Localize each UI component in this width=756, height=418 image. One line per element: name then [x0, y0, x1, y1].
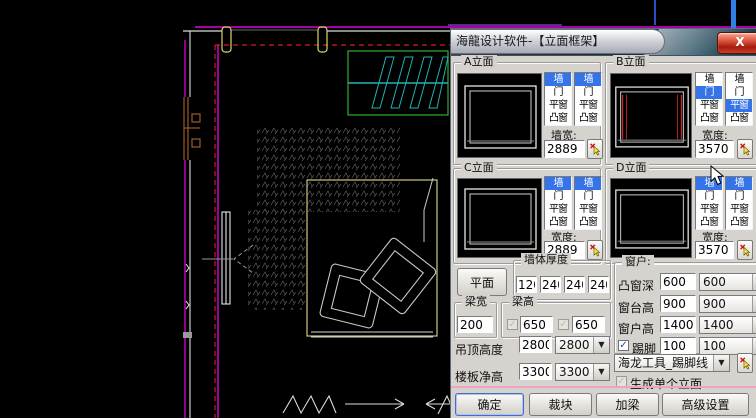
edge-type-list-left[interactable]: 墙门平窗凸窗 — [544, 176, 572, 230]
pick-cursor-icon — [738, 142, 750, 156]
skirting-tool-combo[interactable]: 海龙工具_踢脚线 ▼ — [614, 354, 730, 372]
wall-thickness-input-1[interactable] — [516, 276, 537, 293]
edge-type-list-right[interactable]: 墙门平窗凸窗 — [725, 72, 753, 126]
elevation-group-d: D立面 墙门平窗凸窗 墙门平窗凸窗 宽度: — [605, 168, 756, 264]
edge-type-list-left[interactable]: 墙门平窗凸窗 — [544, 72, 572, 126]
skirting-checkbox[interactable]: ✓ — [618, 340, 629, 351]
list-item[interactable]: 平窗 — [696, 203, 722, 216]
bay-depth-label: 凸窗深 — [618, 277, 654, 294]
ceiling-height-label: 吊顶高度 — [455, 341, 503, 358]
single-elevation-label: 生成单个立面 — [630, 375, 702, 392]
floor-height-label: 楼板净高 — [455, 368, 503, 385]
elevation-group-c: C立面 墙门平窗凸窗 墙门平窗凸窗 宽度: — [453, 168, 601, 264]
list-item[interactable]: 凸窗 — [696, 216, 722, 229]
dialog-titlebar[interactable]: 海龍设计软件-【立面框架】 X — [451, 29, 756, 55]
beam-height-group: 梁高 ✓ ✓ — [501, 302, 611, 338]
group-label: C立面 — [461, 161, 497, 175]
list-item[interactable]: 平窗 — [545, 203, 571, 216]
pick-point-button[interactable] — [737, 353, 753, 373]
cad-dimension-marks — [283, 396, 456, 414]
wall-thickness-input-2[interactable] — [540, 276, 561, 293]
wall-thickness-group: 墙体厚度 — [513, 260, 611, 300]
list-item[interactable]: 门 — [696, 86, 722, 99]
cut-block-button[interactable]: 裁块 — [529, 393, 592, 416]
list-item[interactable]: 墙 — [696, 73, 722, 86]
cad-left-wall — [183, 31, 218, 418]
cad-door — [184, 97, 200, 160]
cad-tv-cabinet — [222, 212, 230, 304]
elevation-preview[interactable] — [610, 73, 692, 158]
list-item[interactable]: 墙 — [575, 73, 601, 86]
list-item[interactable]: 墙 — [726, 177, 752, 190]
chevron-down-icon[interactable]: ▼ — [593, 364, 609, 380]
bay-depth-input[interactable] — [660, 273, 696, 290]
cad-overlay-marks — [448, 0, 736, 28]
window-height-label: 窗户高 — [618, 320, 654, 337]
window-height-input[interactable] — [660, 316, 696, 333]
edge-type-list-right[interactable]: 墙门平窗凸窗 — [574, 176, 602, 230]
chevron-down-icon[interactable]: ▼ — [752, 274, 756, 290]
list-item[interactable]: 门 — [726, 190, 752, 203]
mouse-cursor — [710, 165, 726, 187]
floor-height-input[interactable] — [519, 363, 552, 380]
ceiling-height-combo[interactable]: 2800 ▼ — [555, 336, 610, 354]
edge-type-list-left[interactable]: 墙门平窗凸窗 — [695, 72, 723, 126]
pick-cursor-icon — [588, 243, 600, 257]
list-item[interactable]: 平窗 — [726, 203, 752, 216]
wall-thickness-input-4[interactable] — [588, 276, 609, 293]
pick-cursor-icon — [738, 356, 750, 370]
list-item[interactable]: 凸窗 — [545, 216, 571, 229]
edge-type-list-right[interactable]: 墙门平窗凸窗 — [725, 176, 753, 230]
list-item[interactable]: 门 — [696, 190, 722, 203]
list-item[interactable]: 凸窗 — [726, 216, 752, 229]
list-item[interactable]: 凸窗 — [696, 112, 722, 125]
floor-height-combo[interactable]: 3300 ▼ — [555, 363, 610, 381]
sill-height-combo[interactable]: 900 ▼ — [699, 295, 756, 313]
list-item[interactable]: 凸窗 — [575, 216, 601, 229]
elevation-frame-dialog: 海龍设计软件-【立面框架】 X A立面 墙门平窗凸窗 墙门平窗凸窗 墙宽: — [450, 28, 756, 418]
skirting-input[interactable] — [660, 337, 696, 354]
close-button[interactable]: X — [717, 32, 756, 54]
width-input[interactable] — [544, 140, 585, 158]
beam-height-input-2[interactable] — [572, 316, 605, 333]
elevation-group-a: A立面 墙门平窗凸窗 墙门平窗凸窗 墙宽: — [453, 62, 601, 165]
list-item[interactable]: 墙 — [726, 73, 752, 86]
chevron-down-icon[interactable]: ▼ — [752, 338, 756, 354]
list-item[interactable]: 凸窗 — [726, 112, 752, 125]
cad-stairs — [348, 51, 448, 115]
beam-height-input-1[interactable] — [520, 316, 553, 333]
group-label: 梁高 — [509, 295, 537, 309]
footer-separator — [451, 386, 756, 388]
ceiling-height-input[interactable] — [519, 336, 552, 353]
plan-button[interactable]: 平面 — [457, 268, 507, 296]
wall-thickness-input-3[interactable] — [564, 276, 585, 293]
bay-depth-combo[interactable]: 600 ▼ — [699, 273, 756, 291]
chevron-down-icon[interactable]: ▼ — [593, 337, 609, 353]
group-label: A立面 — [461, 55, 497, 69]
sill-height-input[interactable] — [660, 295, 696, 312]
group-label: B立面 — [613, 55, 649, 69]
beam-width-group: 梁宽 — [454, 302, 497, 338]
dialog-body: A立面 墙门平窗凸窗 墙门平窗凸窗 墙宽: — [451, 55, 756, 418]
screen: 海龍设计软件-【立面框架】 X A立面 墙门平窗凸窗 墙门平窗凸窗 墙宽: — [0, 0, 756, 418]
list-item[interactable]: 凸窗 — [545, 112, 571, 125]
chevron-down-icon[interactable]: ▼ — [752, 296, 756, 312]
list-item[interactable]: 墙 — [545, 73, 571, 86]
elevation-preview[interactable] — [457, 178, 542, 258]
dialog-title: 海龍设计软件-【立面框架】 — [451, 29, 665, 54]
edge-type-list-right[interactable]: 墙门平窗凸窗 — [574, 72, 602, 126]
list-item[interactable]: 门 — [726, 86, 752, 99]
pick-cursor-icon — [738, 243, 750, 257]
list-item[interactable]: 平窗 — [575, 203, 601, 216]
list-item[interactable]: 凸窗 — [575, 112, 601, 125]
add-beam-button[interactable]: 加梁 — [596, 393, 659, 416]
sill-height-label: 窗台高 — [618, 299, 654, 316]
chevron-down-icon[interactable]: ▼ — [713, 355, 729, 371]
list-item[interactable]: 墙 — [575, 177, 601, 190]
list-item[interactable]: 平窗 — [696, 99, 722, 112]
window-height-combo[interactable]: 1400 ▼ — [699, 316, 756, 334]
pick-point-button[interactable] — [587, 139, 603, 159]
list-item[interactable]: 平窗 — [545, 99, 571, 112]
pick-point-button[interactable] — [587, 240, 603, 260]
elevation-preview[interactable] — [457, 73, 542, 158]
window-group: 窗户: 凸窗深 600 ▼ 窗台高 900 ▼ 窗户高 1400 ▼ — [614, 262, 756, 354]
beam-height-checkbox-1[interactable]: ✓ — [507, 319, 518, 330]
group-label: 窗户: — [622, 255, 654, 269]
advanced-settings-button[interactable]: 高级设置 — [662, 393, 749, 416]
list-item[interactable]: 门 — [545, 86, 571, 99]
pick-point-button[interactable] — [737, 240, 753, 260]
group-label: D立面 — [613, 161, 649, 175]
beam-width-input[interactable] — [457, 316, 493, 333]
list-item[interactable]: 门 — [545, 190, 571, 203]
group-label: 墙体厚度 — [521, 253, 571, 267]
cad-leader-arrow — [202, 245, 253, 273]
pick-point-button[interactable] — [737, 139, 753, 159]
elevation-group-b: B立面 墙门平窗凸窗 墙门平窗凸窗 宽度: — [605, 62, 756, 165]
chevron-down-icon[interactable]: ▼ — [752, 317, 756, 333]
list-item[interactable]: 门 — [575, 86, 601, 99]
group-label: 梁宽 — [462, 295, 490, 309]
list-item[interactable]: 平窗 — [726, 99, 752, 112]
beam-height-checkbox-2[interactable]: ✓ — [558, 319, 569, 330]
width-input[interactable] — [695, 140, 734, 158]
list-item[interactable]: 平窗 — [575, 99, 601, 112]
elevation-preview[interactable] — [610, 178, 692, 258]
width-input[interactable] — [695, 241, 734, 259]
list-item[interactable]: 门 — [575, 190, 601, 203]
ok-button[interactable]: 确定 — [455, 393, 524, 416]
list-item[interactable]: 墙 — [545, 177, 571, 190]
pick-cursor-icon — [588, 142, 600, 156]
